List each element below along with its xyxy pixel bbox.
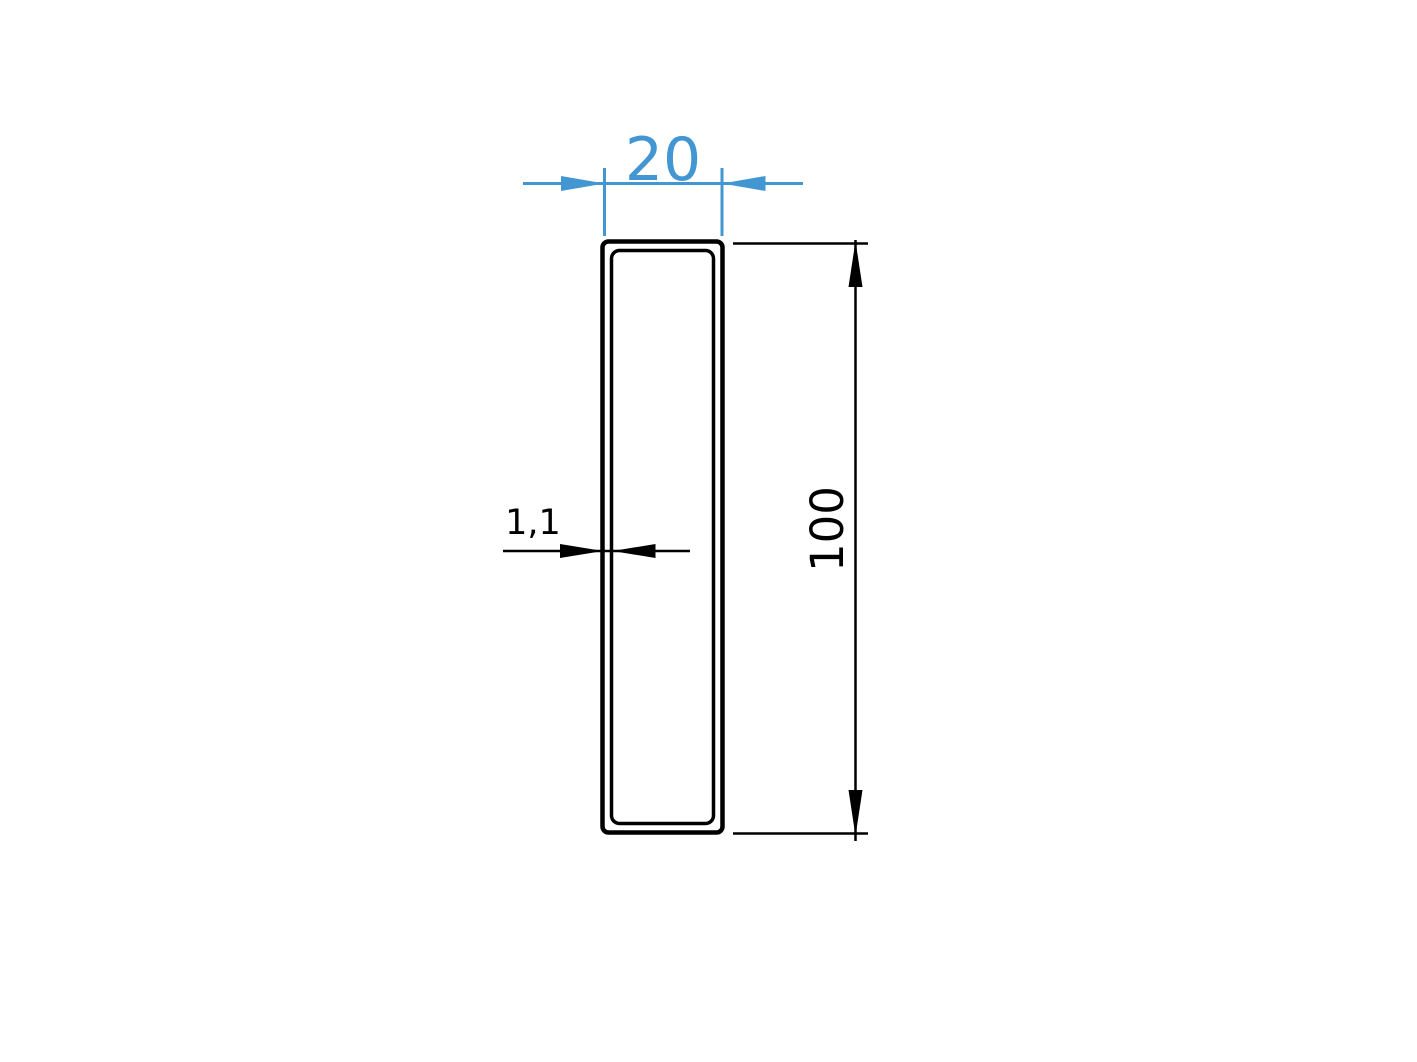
- profile-inner-wall: [612, 251, 714, 824]
- dimension-thickness: 1,1: [503, 503, 690, 558]
- technical-drawing: 20 100 1,1: [0, 0, 1417, 1062]
- width-dimension-value: 20: [625, 125, 701, 195]
- dimension-width: 20: [523, 125, 803, 236]
- width-arrowhead-left-icon: [561, 176, 605, 191]
- profile-outer-wall: [603, 242, 723, 833]
- drawing-canvas: 20 100 1,1: [0, 0, 1417, 1062]
- thickness-arrowhead-left-icon: [613, 544, 656, 558]
- height-arrowhead-up-icon: [849, 241, 863, 287]
- dimension-height: 100: [733, 240, 868, 841]
- height-arrowhead-down-icon: [849, 790, 863, 836]
- width-arrowhead-right-icon: [722, 176, 766, 191]
- profile-cross-section: [603, 242, 723, 833]
- thickness-arrowhead-right-icon: [560, 544, 603, 558]
- thickness-dimension-value: 1,1: [505, 503, 561, 543]
- height-dimension-value: 100: [801, 486, 854, 572]
